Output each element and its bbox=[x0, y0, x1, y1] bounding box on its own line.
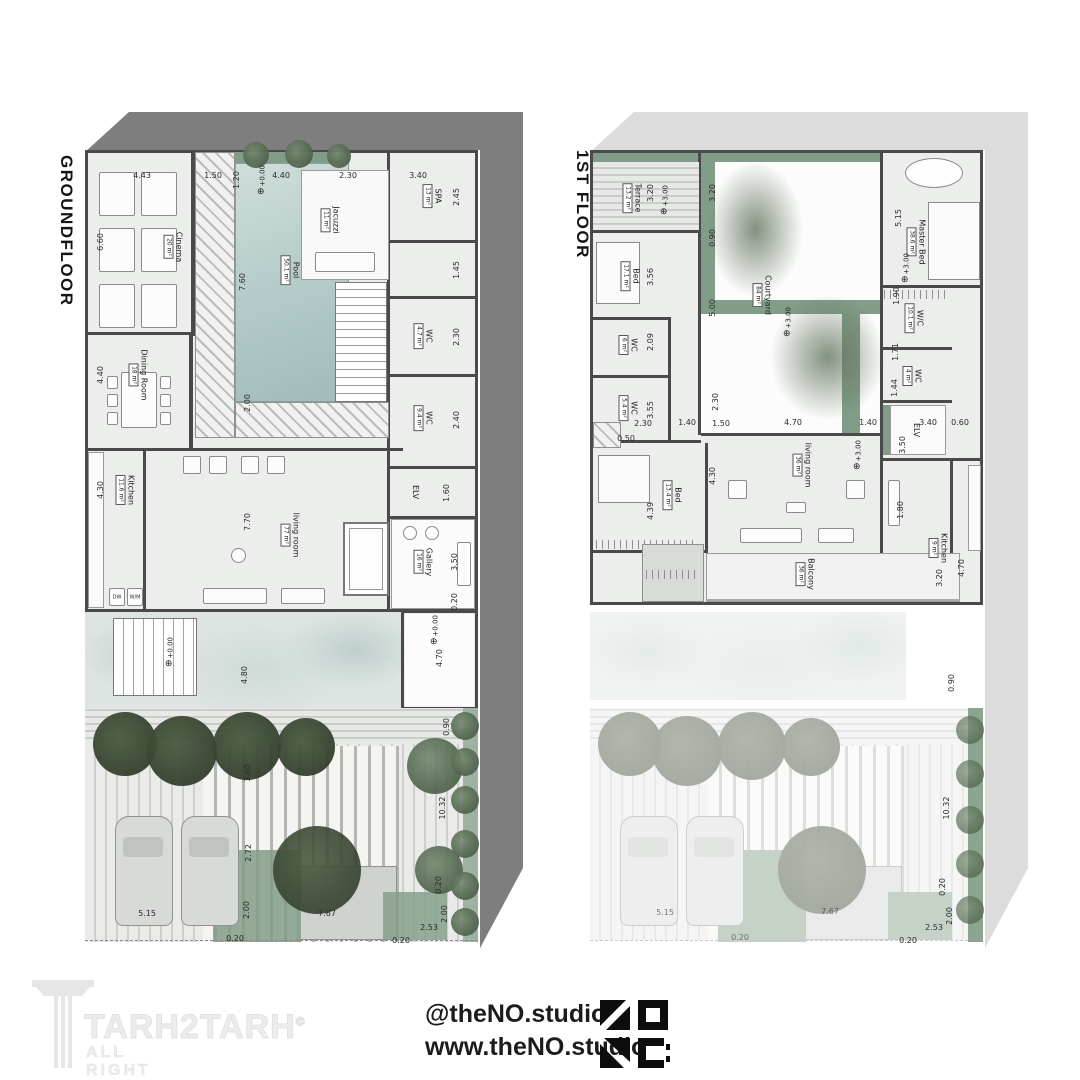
tree bbox=[327, 144, 351, 168]
wall bbox=[85, 448, 403, 451]
dim-label: 1.44 bbox=[891, 379, 899, 397]
dim-label: 0.20 bbox=[226, 935, 244, 943]
room-label-wic: W/C10.1 m² bbox=[905, 303, 924, 333]
room-label-dining: Dining Room18 m² bbox=[129, 349, 148, 400]
dim-label: 2.45 bbox=[453, 188, 461, 206]
dim-label: 1.60 bbox=[443, 484, 451, 502]
dim-label: 2.00 bbox=[441, 905, 449, 923]
chair bbox=[107, 412, 118, 425]
dim-label: 3.40 bbox=[919, 419, 937, 427]
dim-label: 5.15 bbox=[656, 909, 674, 917]
dim-label: 0.90 bbox=[443, 718, 451, 736]
dim-label: 3.20 bbox=[709, 184, 717, 202]
room-label-wc1: WC4.7 m² bbox=[414, 323, 433, 349]
dim-label: 0.50 bbox=[617, 435, 635, 443]
dim-label: 2.53 bbox=[420, 924, 438, 932]
chair bbox=[160, 376, 171, 389]
car-windshield bbox=[123, 837, 163, 857]
wall bbox=[85, 332, 193, 335]
sofa bbox=[203, 588, 267, 604]
wall bbox=[880, 150, 883, 605]
dim-label: 3.55 bbox=[647, 401, 655, 419]
dim-label: 7.70 bbox=[244, 513, 252, 531]
bed bbox=[928, 202, 980, 280]
room-label-wcm: WC4 m² bbox=[903, 366, 922, 386]
dim-label: 1.80 bbox=[897, 501, 905, 519]
wall bbox=[705, 443, 708, 553]
armchair bbox=[728, 480, 747, 499]
site-boundary bbox=[85, 940, 478, 941]
dim-label: 3.50 bbox=[451, 553, 459, 571]
dim-label: 0.60 bbox=[951, 419, 969, 427]
bed bbox=[598, 455, 650, 503]
dim-label: 0.90 bbox=[948, 674, 956, 692]
sofa bbox=[281, 588, 325, 604]
tree bbox=[956, 850, 984, 878]
bathtub bbox=[905, 158, 963, 188]
wall bbox=[590, 230, 700, 233]
dim-label: 1.45 bbox=[453, 261, 461, 279]
room-label-living: living room77 m² bbox=[281, 513, 300, 558]
room-label-kitchen: Kitchen9 m² bbox=[929, 533, 948, 563]
tree bbox=[956, 896, 984, 924]
side-table bbox=[231, 548, 246, 563]
tree bbox=[277, 718, 335, 776]
level-marker: ⊕+3.00 bbox=[854, 440, 863, 470]
dim-label: 4.30 bbox=[709, 467, 717, 485]
dim-label: 2.00 bbox=[243, 901, 251, 919]
dim-label: 5.15 bbox=[895, 209, 903, 227]
dim-label: 10.32 bbox=[439, 797, 447, 820]
cinema-sofa bbox=[99, 172, 135, 216]
poster-canvas: GROUNDFLOOR bbox=[0, 0, 1080, 1080]
armchair bbox=[846, 480, 865, 499]
tree bbox=[451, 712, 479, 740]
armchair bbox=[241, 456, 259, 474]
dim-label: 10.32 bbox=[943, 797, 951, 820]
dim-label: 0.90 bbox=[709, 229, 717, 247]
dim-label: 2.30 bbox=[712, 393, 720, 411]
dim-label: 2.72 bbox=[245, 844, 253, 862]
gallery-seat bbox=[425, 526, 439, 540]
chair bbox=[160, 412, 171, 425]
dim-label: 0.20 bbox=[435, 876, 443, 894]
dim-label: 4.40 bbox=[272, 172, 290, 180]
tree bbox=[147, 716, 217, 786]
wall bbox=[880, 400, 952, 403]
tree bbox=[956, 760, 984, 788]
wall bbox=[880, 458, 983, 461]
first-floor-drawing: Terrace13.2 m² Bed17.1 m² WC6 m² WC5.4 m… bbox=[590, 150, 985, 950]
stair-hatch bbox=[646, 570, 700, 579]
dim-label: 2.30 bbox=[453, 328, 461, 346]
billiard-table bbox=[343, 522, 389, 596]
tree bbox=[451, 748, 479, 776]
chair bbox=[107, 394, 118, 407]
room-label-bed2: Bed13.4 m² bbox=[663, 480, 682, 510]
dim-label: 4.70 bbox=[436, 649, 444, 667]
armchair bbox=[209, 456, 227, 474]
level-marker: ⊕+0.00 bbox=[258, 165, 267, 195]
dim-label: 6.60 bbox=[97, 233, 105, 251]
dim-label: 2.30 bbox=[634, 420, 652, 428]
dim-label: 1.20 bbox=[233, 171, 241, 189]
dim-label: 2.53 bbox=[925, 924, 943, 932]
car bbox=[181, 816, 239, 926]
wall bbox=[387, 374, 478, 377]
room-label-courtyard: Courtyard84 m² bbox=[753, 275, 772, 315]
wall bbox=[590, 317, 670, 320]
planter-strip bbox=[593, 153, 880, 162]
dim-label: 1.50 bbox=[712, 420, 730, 428]
gallery-bench bbox=[457, 542, 471, 586]
wall bbox=[143, 450, 146, 610]
room-label-cinema: Cinema20 m² bbox=[164, 232, 183, 263]
wall bbox=[387, 466, 478, 469]
dim-label: 1.90 bbox=[893, 287, 901, 305]
tree bbox=[285, 140, 313, 168]
room-label-spa: SPA13 m² bbox=[423, 184, 442, 208]
chair bbox=[107, 376, 118, 389]
pool-deck bbox=[195, 152, 235, 438]
garden-stairs bbox=[113, 618, 197, 696]
dim-label: 4.70 bbox=[784, 419, 802, 427]
room-label-kitchen: Kitchen11.6 m² bbox=[116, 475, 135, 505]
room-label-bed1: Bed17.1 m² bbox=[621, 261, 640, 291]
dim-label: 1.50 bbox=[204, 172, 222, 180]
cinema-sofa bbox=[99, 284, 135, 328]
lawn-patch bbox=[383, 892, 447, 940]
planter-strip bbox=[883, 405, 890, 455]
wall bbox=[701, 433, 880, 436]
tree bbox=[451, 872, 479, 900]
dim-label: 3.50 bbox=[899, 436, 907, 454]
room-label-wc2: WC9.4 m² bbox=[414, 405, 433, 431]
plan-first-floor: Terrace13.2 m² Bed17.1 m² WC6 m² WC5.4 m… bbox=[590, 108, 1030, 953]
sofa bbox=[740, 528, 802, 543]
wall bbox=[387, 240, 478, 243]
armchair bbox=[267, 456, 285, 474]
side-planting-strip bbox=[463, 708, 478, 942]
dim-label: 1.40 bbox=[678, 419, 696, 427]
room-label-gallery: Gallery16 m² bbox=[414, 548, 433, 577]
dim-label: 2.30 bbox=[339, 172, 357, 180]
dim-label: 2.00 bbox=[946, 907, 954, 925]
dim-label: 4.43 bbox=[133, 172, 151, 180]
appliance-label: DW bbox=[113, 596, 122, 601]
room-label-pool: Pool50.1 m² bbox=[281, 255, 300, 285]
dim-label: 7.67 bbox=[318, 910, 336, 918]
dim-label: 3.40 bbox=[409, 172, 427, 180]
appliance-label: W/M bbox=[130, 596, 141, 601]
wall bbox=[590, 375, 670, 378]
room-label-wc2: WC5.4 m² bbox=[619, 395, 638, 421]
dim-label: 5.15 bbox=[138, 910, 156, 918]
room-label-wc1: WC6 m² bbox=[619, 335, 638, 355]
dim-label: 4.70 bbox=[958, 559, 966, 577]
stairs bbox=[335, 282, 387, 402]
tree bbox=[451, 786, 479, 814]
level-marker: ⊕+0.00 bbox=[431, 615, 440, 645]
tree bbox=[956, 806, 984, 834]
tree bbox=[451, 908, 479, 936]
groundfloor-title: GROUNDFLOOR bbox=[56, 155, 76, 307]
gallery-seat bbox=[403, 526, 417, 540]
first-floor-title: 1ST FLOOR bbox=[572, 150, 592, 259]
dim-label: 0.20 bbox=[899, 937, 917, 945]
level-marker: ⊕+0.00 bbox=[166, 637, 175, 667]
room-label-balcony: Balcony36 m² bbox=[796, 558, 815, 590]
level-marker: ⊕+3.00 bbox=[784, 307, 793, 337]
wall bbox=[189, 332, 193, 450]
no-studio-logo-icon bbox=[600, 1000, 670, 1070]
balcony bbox=[706, 553, 960, 602]
dim-label: 2.40 bbox=[453, 411, 461, 429]
dim-label: 1.40 bbox=[859, 419, 877, 427]
car-windshield bbox=[189, 837, 229, 857]
dim-label: 7.60 bbox=[239, 273, 247, 291]
balcony-rail bbox=[706, 599, 960, 601]
dim-label: 0.20 bbox=[392, 937, 410, 945]
dim-label: 0.20 bbox=[451, 593, 459, 611]
watermark-tagline: ALL RIGHT RESERVED bbox=[86, 1044, 198, 1080]
tarh2tarh-watermark: TARH2TARH© ALL RIGHT RESERVED bbox=[32, 980, 94, 1076]
armchair bbox=[183, 456, 201, 474]
chair bbox=[160, 394, 171, 407]
level-marker: ⊕+3.00 bbox=[902, 253, 911, 283]
room-label-elv: ELV bbox=[411, 485, 419, 499]
dim-label: 3.20 bbox=[647, 184, 655, 202]
dim-label: 2.00 bbox=[244, 394, 252, 412]
dim-label: 4.39 bbox=[647, 502, 655, 520]
dim-label: 1.71 bbox=[892, 343, 900, 361]
coffee-table bbox=[786, 502, 806, 513]
tree bbox=[273, 826, 361, 914]
level-marker: ⊕+3.00 bbox=[661, 185, 670, 215]
groundfloor-drawing: Cinema20 m² Dining Room18 m² Kitchen11.6… bbox=[85, 150, 480, 950]
dim-label: 3.20 bbox=[936, 569, 944, 587]
dim-label: 2.09 bbox=[647, 333, 655, 351]
plan-groundfloor: Cinema20 m² Dining Room18 m² Kitchen11.6… bbox=[85, 108, 525, 953]
room-label-living: living room36 m² bbox=[793, 443, 812, 488]
dim-label: 5.00 bbox=[709, 299, 717, 317]
dim-label: 4.40 bbox=[97, 366, 105, 384]
sofa bbox=[818, 528, 854, 543]
dim-label: 3.60 bbox=[244, 764, 252, 782]
kitchen-counter bbox=[88, 452, 104, 608]
tree bbox=[956, 716, 984, 744]
wall bbox=[387, 296, 478, 299]
room-label-terrace: Terrace13.2 m² bbox=[623, 183, 642, 213]
dim-label: 3.56 bbox=[647, 268, 655, 286]
dim-label: 4.30 bbox=[97, 481, 105, 499]
tree bbox=[451, 830, 479, 858]
dim-label: 0.20 bbox=[939, 878, 947, 896]
kitchen-counter bbox=[968, 465, 981, 551]
cinema-sofa bbox=[141, 284, 177, 328]
jacuzzi-tub bbox=[315, 252, 375, 272]
dim-label: 4.80 bbox=[241, 666, 249, 684]
room-label-jacuzzi: Jacuzzi11 m² bbox=[321, 206, 340, 233]
dim-label: 7.67 bbox=[821, 908, 839, 916]
pool-deck bbox=[235, 402, 389, 438]
dim-label: 0.20 bbox=[731, 934, 749, 942]
wall bbox=[668, 317, 671, 443]
ghost-site bbox=[590, 605, 983, 950]
watermark-name: TARH2TARH© bbox=[84, 1008, 306, 1047]
